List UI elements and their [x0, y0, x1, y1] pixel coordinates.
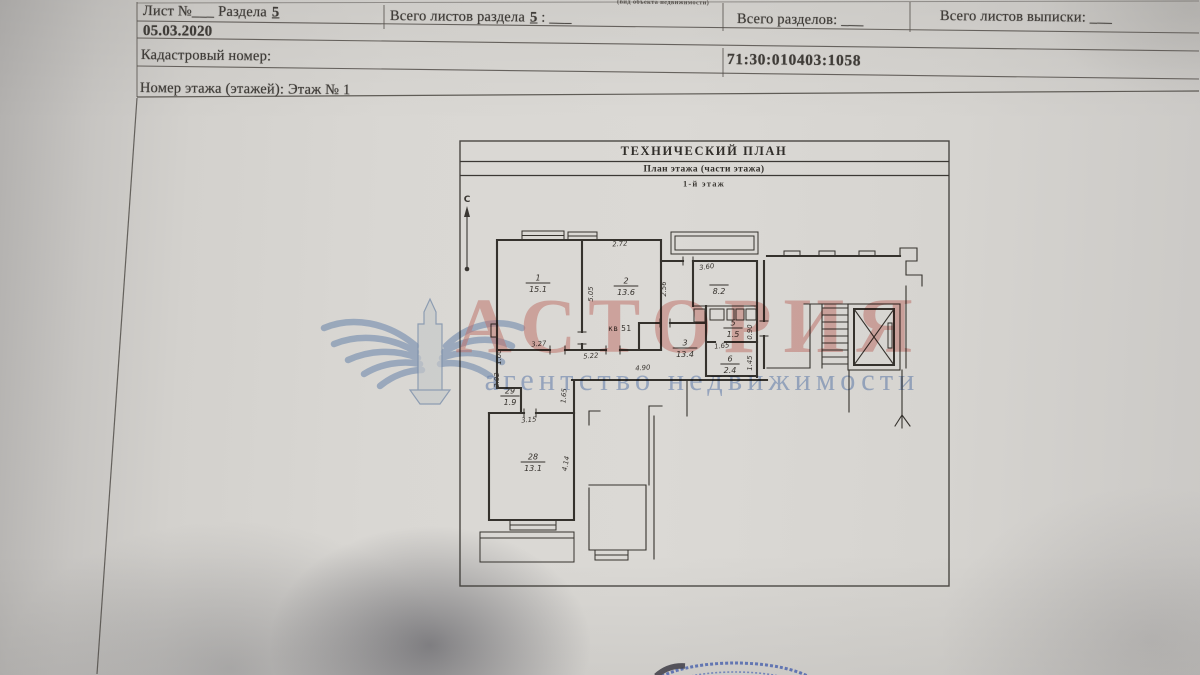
dimension-label: 2.72 — [612, 239, 628, 248]
floor-number-line: Номер этажа (этажей): Этаж № 1 — [140, 80, 351, 99]
svg-text:28: 28 — [528, 453, 538, 462]
section-sheets-label: Всего листов раздела — [390, 8, 525, 25]
north-arrowhead — [464, 206, 470, 217]
watermark-brand-text: АСТОРИЯ — [455, 286, 924, 369]
north-label: С — [464, 195, 471, 205]
cadastral-label: Кадастровый номер: — [141, 47, 272, 65]
sheet-number-cell: Лист №___ Раздела5 — [143, 3, 280, 21]
section-sheets-cell: Всего листов раздела5 : ___ — [390, 8, 572, 27]
dimension-label: 4.14 — [561, 456, 572, 472]
svg-text:1: 1 — [535, 274, 540, 283]
stamp-dark-mark — [656, 666, 685, 675]
svg-text:13.1: 13.1 — [524, 464, 542, 473]
cadastral-value: 71:30:010403:1058 — [727, 51, 861, 70]
watermark: АСТОРИЯ агентство недвижимости — [300, 286, 940, 416]
dimension-label: 3.15 — [521, 415, 537, 424]
north-arrow: С — [464, 195, 471, 271]
plan-floor-label: 1-й этаж — [683, 179, 725, 189]
watermark-tagline-text: агентство недвижимости — [485, 363, 920, 397]
total-sections-cell: Всего разделов: ___ — [737, 11, 864, 29]
section-sheets-value: 5 — [530, 9, 538, 25]
dimension-label: 3.60 — [699, 262, 715, 272]
round-stamp — [647, 663, 823, 675]
plan-title: ТЕХНИЧЕСКИЙ ПЛАН — [621, 144, 788, 158]
section-sheets-suffix: : ___ — [541, 10, 572, 26]
room-label: 2813.1 — [521, 453, 546, 474]
kind-note: (вид объекта недвижимости) — [617, 0, 709, 6]
total-sheets-cell: Всего листов выписки: ___ — [940, 8, 1112, 27]
sheet-value: 5 — [272, 4, 280, 20]
date-value: 05.03.2020 — [143, 23, 213, 41]
document-photo: (вид объекта недвижимости) Лист №___ Раз… — [0, 0, 1200, 675]
sheet-label: Лист №___ Раздела — [143, 3, 267, 20]
svg-text:2: 2 — [623, 277, 628, 286]
plan-subtitle: План этажа (части этажа) — [643, 164, 764, 175]
